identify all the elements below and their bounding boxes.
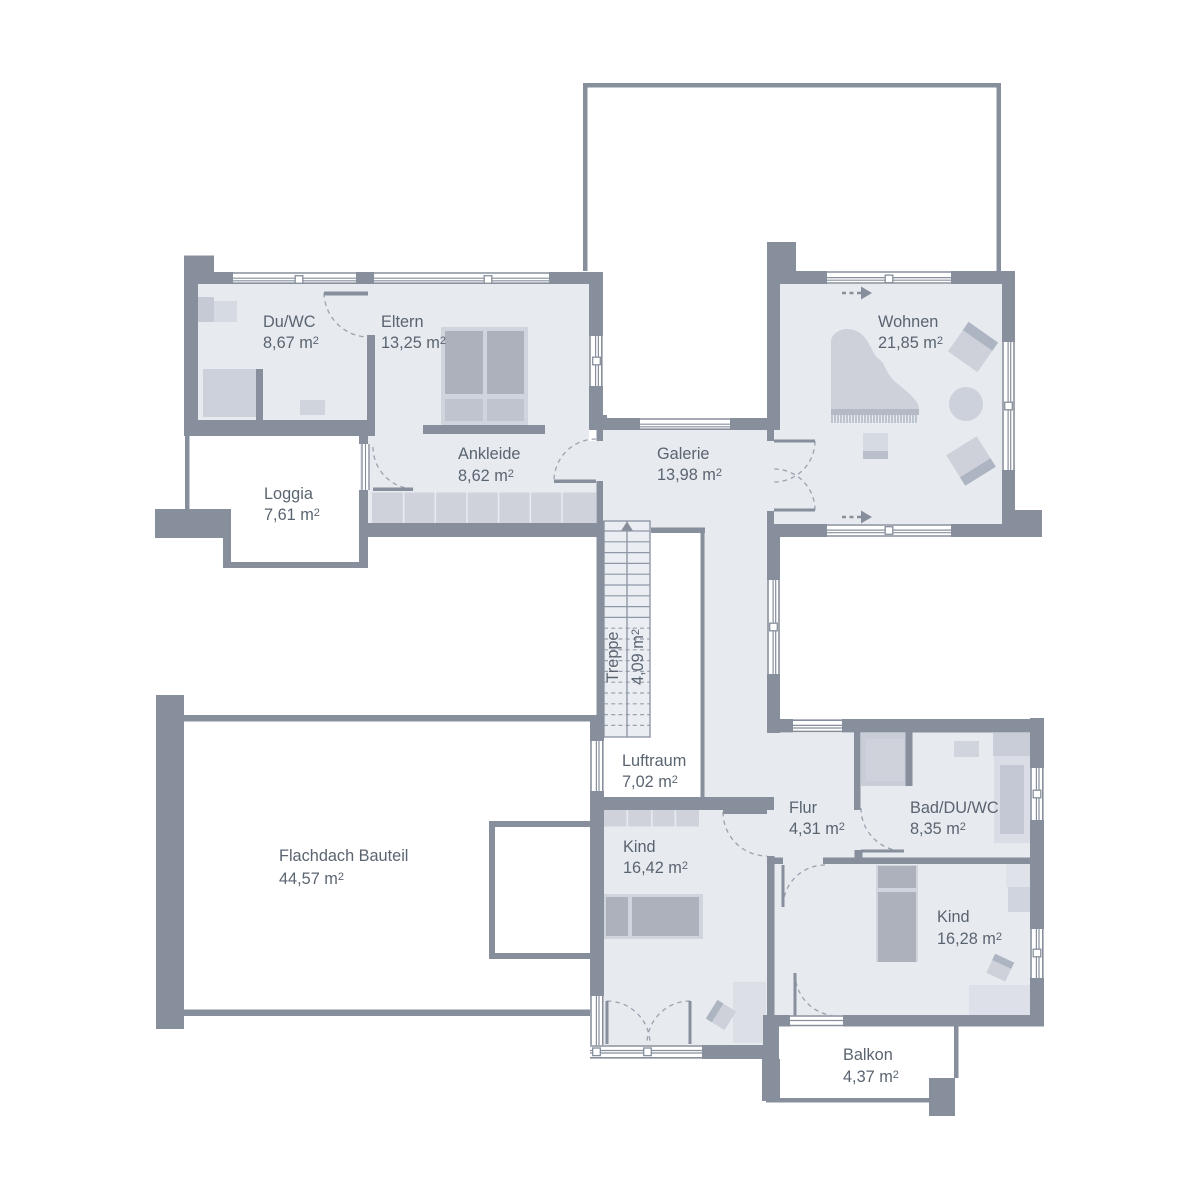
svg-text:Du/WC: Du/WC	[263, 313, 316, 331]
svg-text:Eltern: Eltern	[381, 313, 424, 331]
svg-text:Bad/DU/WC: Bad/DU/WC	[910, 799, 999, 817]
svg-text:Kind: Kind	[623, 838, 656, 856]
svg-text:8,62 m2: 8,62 m2	[458, 467, 514, 485]
svg-text:4,37 m2: 4,37 m2	[843, 1068, 899, 1086]
svg-text:Flachdach Bauteil: Flachdach Bauteil	[279, 847, 408, 865]
svg-text:Wohnen: Wohnen	[878, 313, 938, 331]
svg-text:44,57 m2: 44,57 m2	[279, 870, 344, 888]
svg-text:Flur: Flur	[789, 799, 818, 817]
svg-text:13,25 m2: 13,25 m2	[381, 334, 446, 352]
svg-text:Treppe: Treppe	[604, 632, 622, 683]
svg-text:4,09 m2: 4,09 m2	[629, 629, 647, 685]
svg-text:16,42 m2: 16,42 m2	[623, 859, 688, 877]
svg-text:21,85 m2: 21,85 m2	[878, 334, 943, 352]
svg-text:7,61 m2: 7,61 m2	[264, 506, 320, 524]
svg-text:8,67 m2: 8,67 m2	[263, 334, 319, 352]
svg-text:Ankleide: Ankleide	[458, 445, 520, 463]
svg-text:16,28 m2: 16,28 m2	[937, 930, 1002, 948]
svg-text:8,35 m2: 8,35 m2	[910, 820, 966, 838]
svg-text:13,98 m2: 13,98 m2	[657, 466, 722, 484]
svg-text:Kind: Kind	[937, 908, 970, 926]
svg-text:Balkon: Balkon	[843, 1046, 893, 1064]
svg-text:Luftraum: Luftraum	[622, 752, 686, 770]
svg-text:7,02 m2: 7,02 m2	[622, 773, 678, 791]
svg-text:4,31 m2: 4,31 m2	[789, 820, 845, 838]
svg-text:Galerie: Galerie	[657, 445, 710, 463]
svg-text:Loggia: Loggia	[264, 485, 314, 503]
